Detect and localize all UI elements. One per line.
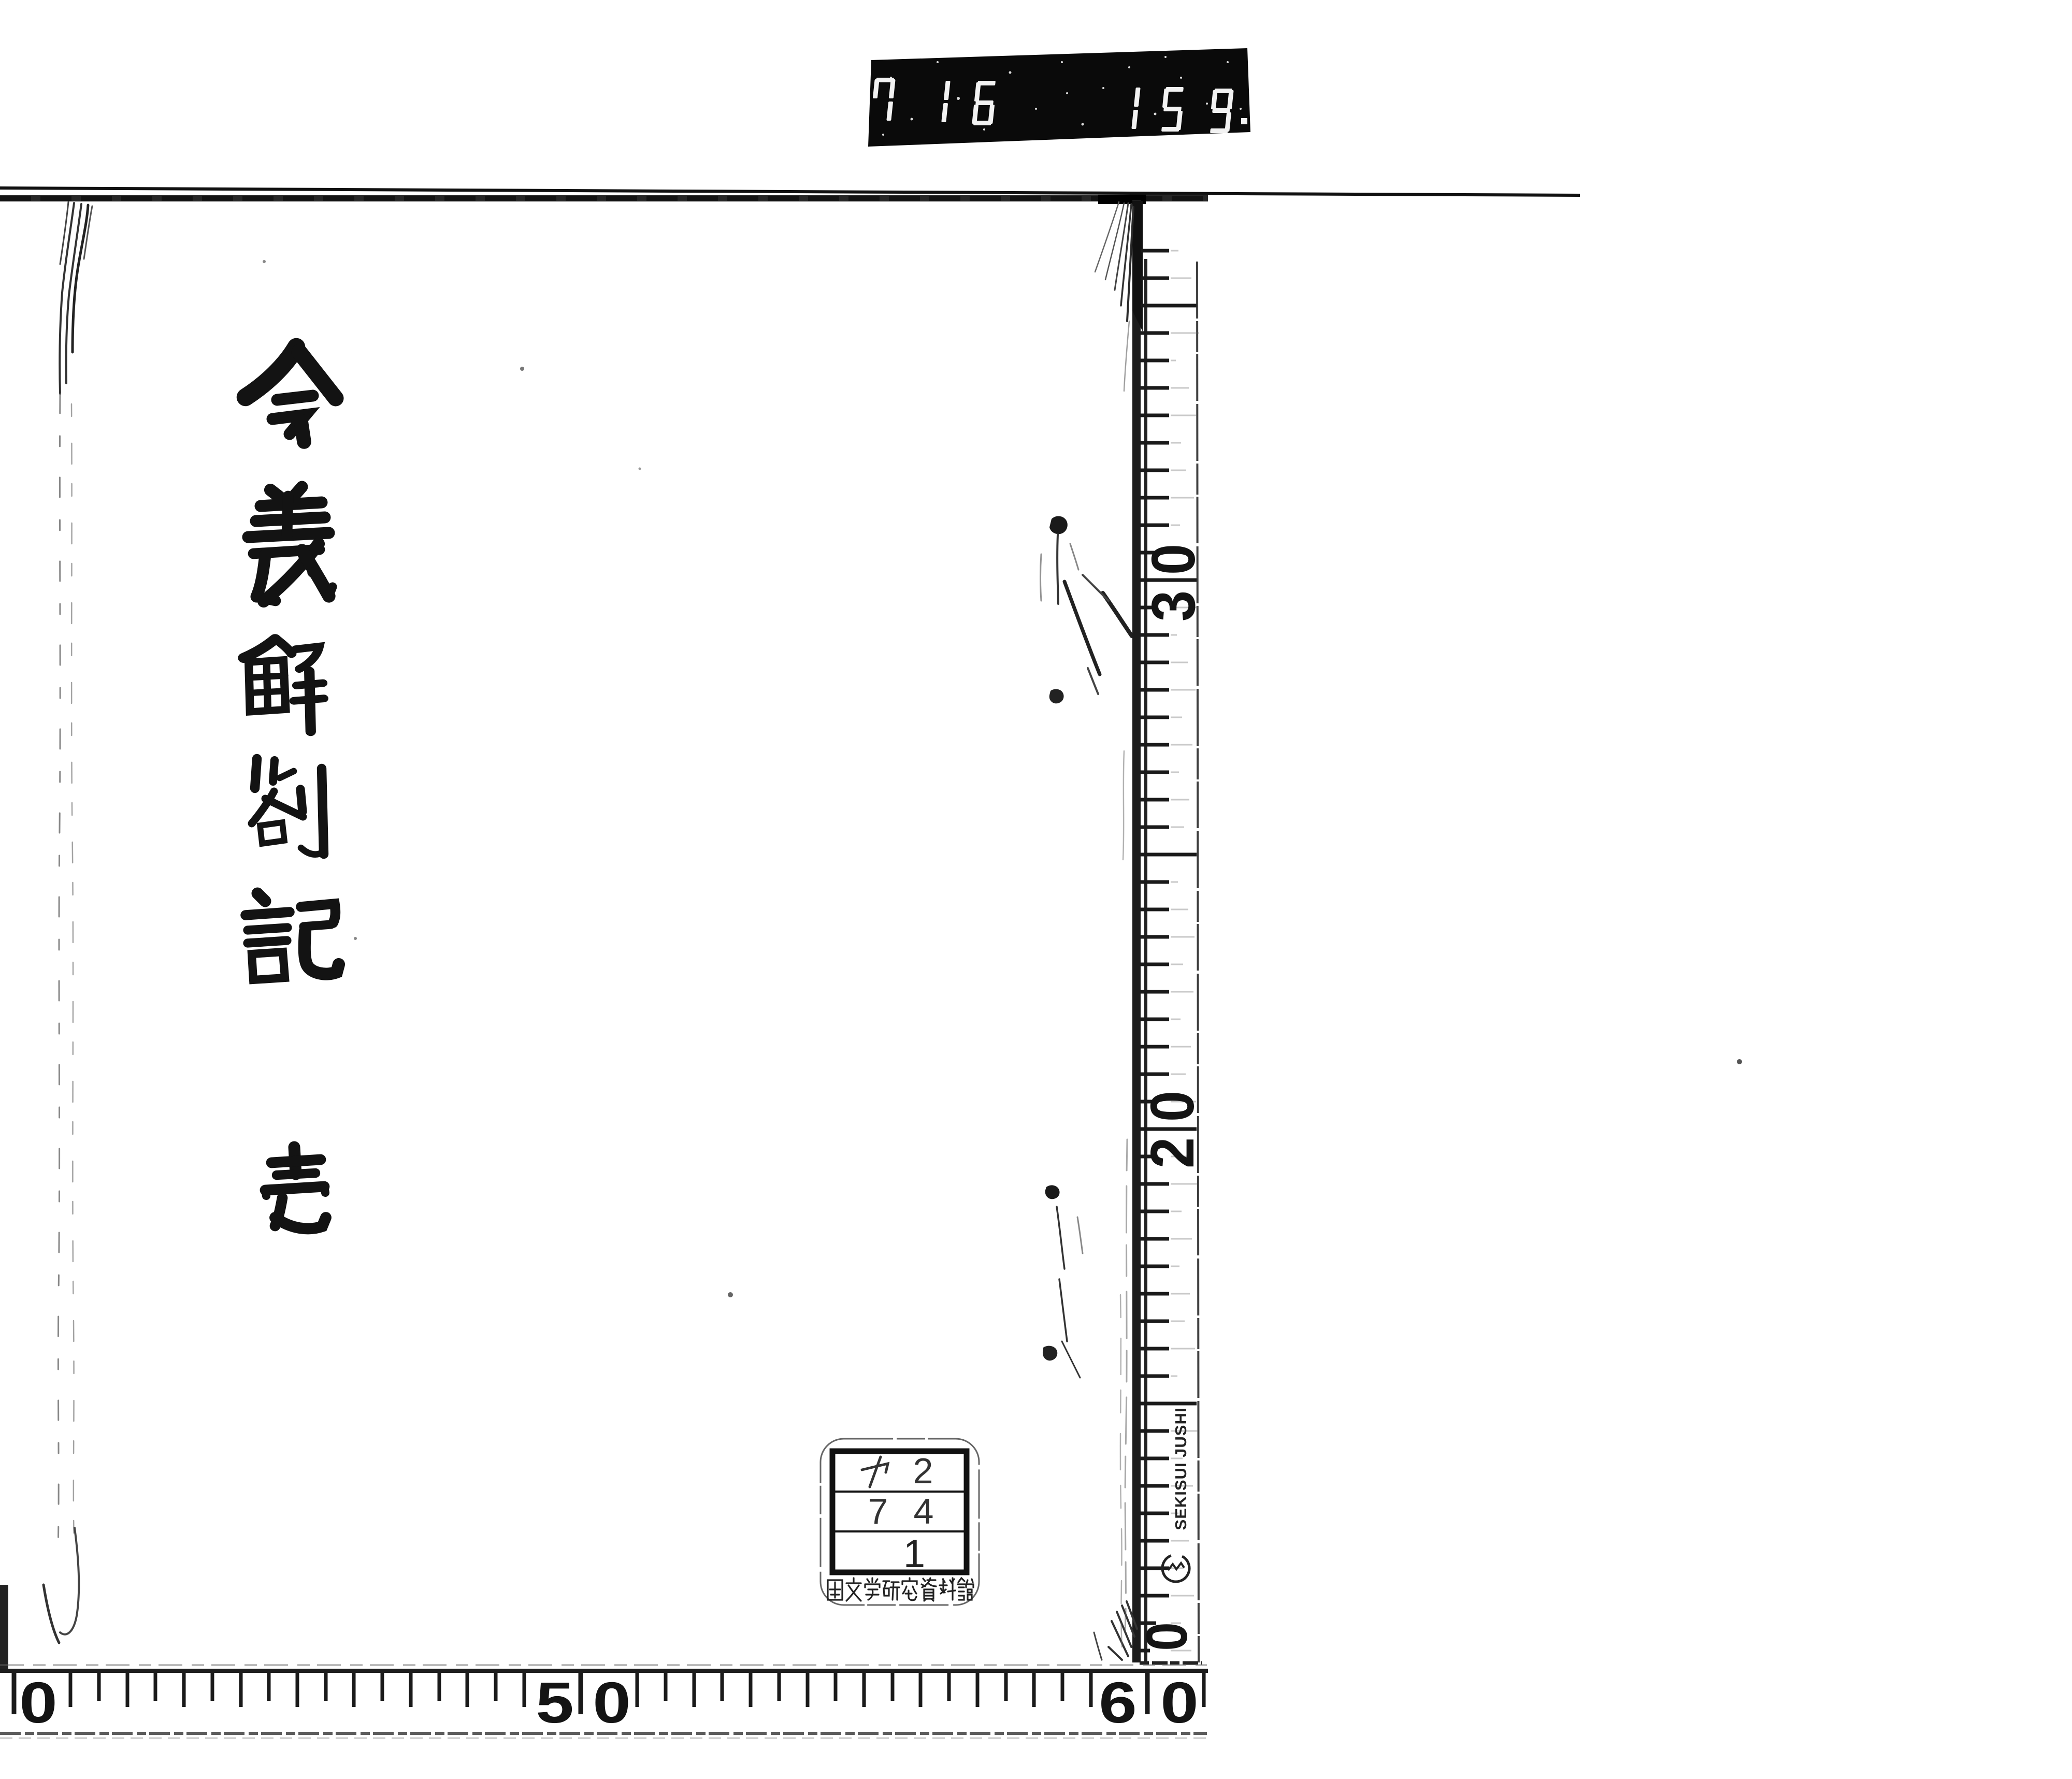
svg-text:2: 2 [913,1451,933,1491]
svg-text:SEKISUI JUSHI: SEKISUI JUSHI [1172,1408,1190,1530]
svg-text:7: 7 [868,1491,888,1531]
svg-text:0: 0 [593,1670,631,1735]
svg-text:4: 4 [914,1491,934,1531]
svg-text:6: 6 [1099,1670,1137,1735]
svg-text:5: 5 [536,1670,574,1735]
svg-text:0: 0 [19,1670,57,1735]
svg-text:20: 20 [1138,1075,1207,1168]
svg-text:0: 0 [1160,1670,1199,1735]
svg-text:30: 30 [1139,528,1208,621]
svg-text:0: 0 [1135,1622,1199,1651]
svg-text:1: 1 [903,1532,925,1576]
